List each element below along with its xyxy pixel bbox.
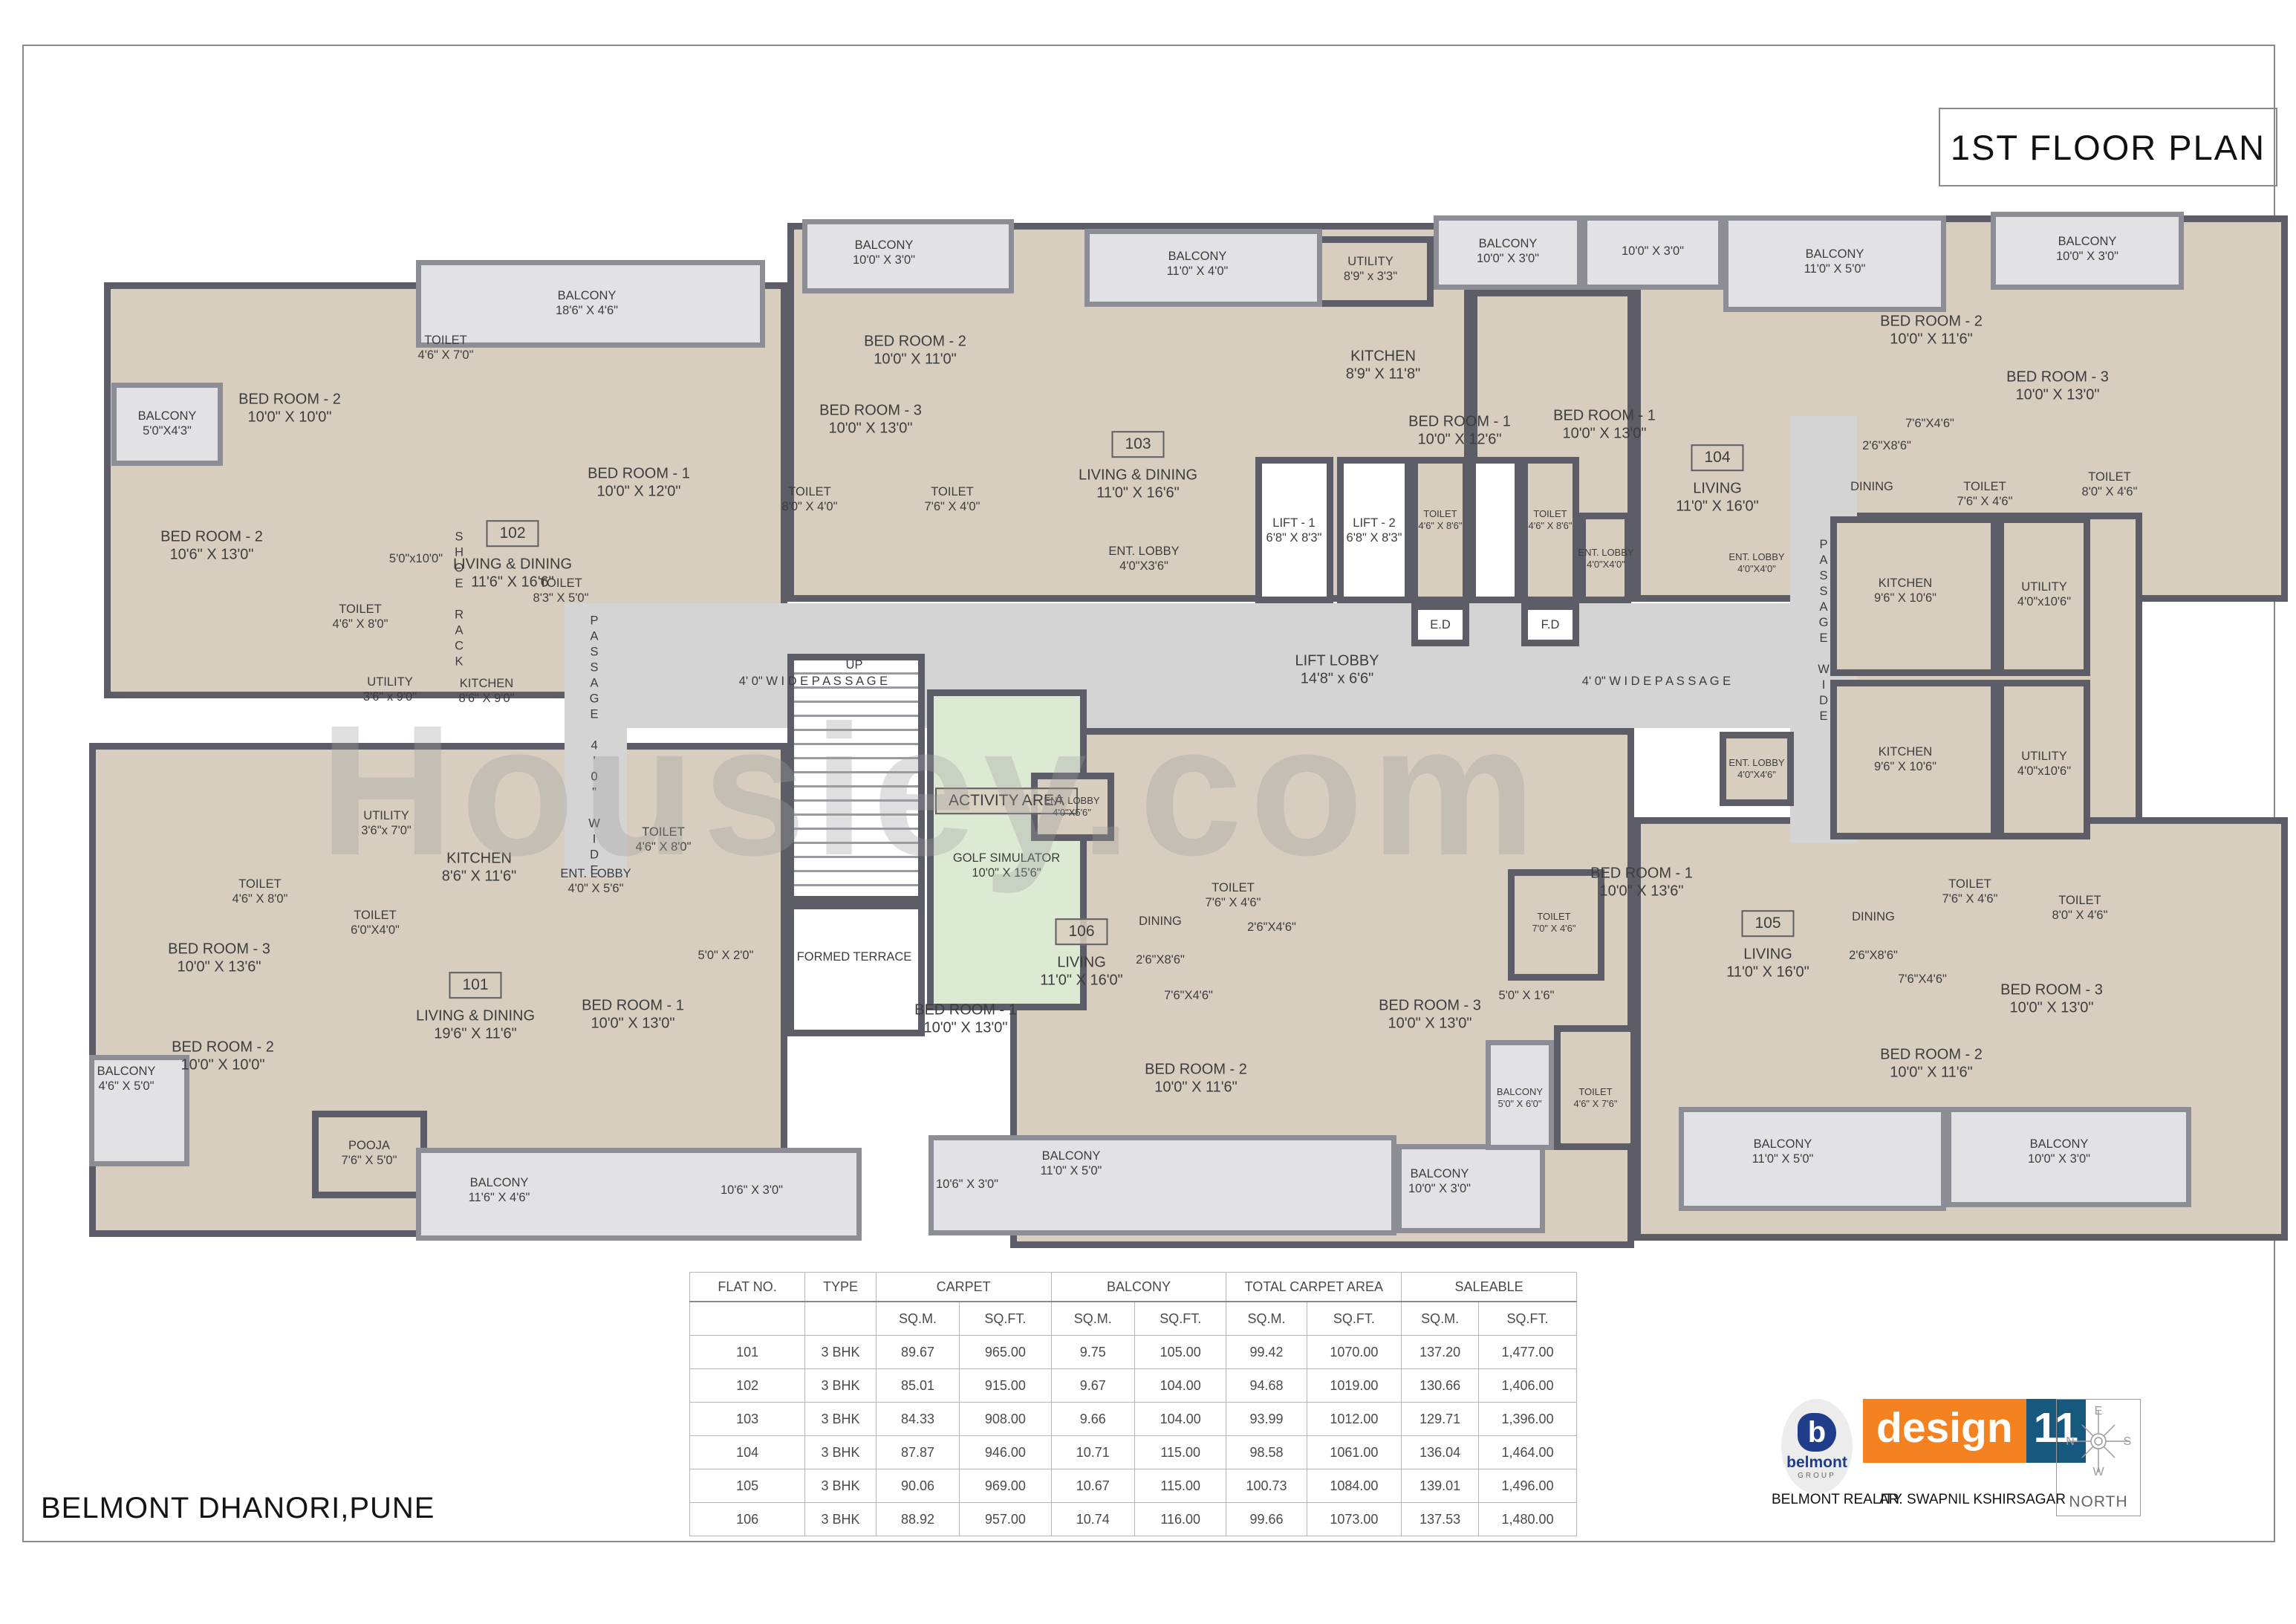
table-row: 1063 BHK88.92957.0010.74116.0099.661073.… <box>690 1503 1577 1536</box>
page-title: 1ST FLOOR PLAN <box>1951 127 2266 168</box>
belmont-logo-name: belmont <box>1786 1454 1847 1472</box>
table-unit-header: SQ.M. <box>1051 1302 1135 1336</box>
room-label: BED ROOM - 110'0" X 12'0" <box>588 465 690 501</box>
room-label: DINING <box>1852 909 1895 924</box>
table-col-header: FLAT NO. <box>690 1273 805 1302</box>
room-label: 2'6"X8'6" <box>1136 952 1185 967</box>
table-cell: 908.00 <box>960 1403 1051 1436</box>
room-label: TOILET6'0"X4'0" <box>351 908 400 938</box>
table-cell: 88.92 <box>876 1503 960 1536</box>
room-label: 2'6"X8'6" <box>1849 948 1898 963</box>
room-label: UTILITY3'6"x 7'0" <box>361 808 412 838</box>
room-label: BED ROOM - 310'0" X 13'0" <box>1379 997 1481 1033</box>
room-label: TOILET7'6" X 4'6" <box>1942 877 1998 906</box>
room-label: GOLF SIMULATOR10'0" X 15'6" <box>953 851 1060 880</box>
table-cell: 1019.00 <box>1307 1369 1402 1403</box>
table-cell: 3 BHK <box>805 1336 877 1369</box>
room-label: BALCONY10'0" X 3'0" <box>2056 234 2118 264</box>
room-label: LIVING & DINING11'0" X 16'6" <box>1079 467 1197 503</box>
table-cell: 136.04 <box>1402 1436 1479 1469</box>
table-cell: 116.00 <box>1135 1503 1226 1536</box>
table-cell: 1,480.00 <box>1479 1503 1577 1536</box>
table-cell: 87.87 <box>876 1436 960 1469</box>
room-label: BALCONY18'6" X 4'6" <box>556 288 618 318</box>
table-cell: 84.33 <box>876 1403 960 1436</box>
room-label: 2'6"X4'6" <box>1247 920 1296 935</box>
room-label: 10'6" X 3'0" <box>721 1183 783 1198</box>
room-label: LIFT - 16'8" X 8'3" <box>1266 516 1322 545</box>
shaft <box>787 903 925 1036</box>
room-label: TOILET8'0" X 4'0" <box>782 484 838 514</box>
room-label: BALCONY10'0" X 3'0" <box>853 238 915 267</box>
room-label: BED ROOM - 310'0" X 13'0" <box>2006 368 2109 405</box>
room-label: PASSAGE WIDE <box>1816 538 1831 725</box>
table-col-header: CARPET <box>876 1273 1051 1302</box>
room-label: TOILET4'6" X 8'0" <box>333 602 388 631</box>
room-label: ENT. LOBBY4'0"X5'6" <box>1044 795 1099 819</box>
room-label: DINING <box>1139 914 1182 929</box>
room-label: KITCHEN8'6" X 11'6" <box>442 850 516 886</box>
room-label: TOILET4'6" X 7'0" <box>418 333 474 363</box>
area-table-head: FLAT NO.TYPECARPETBALCONYTOTAL CARPET AR… <box>690 1273 1577 1336</box>
table-cell: 1070.00 <box>1307 1336 1402 1369</box>
room-label: TOILET4'6" X 8'6" <box>1418 508 1462 532</box>
room-label: UP <box>846 657 863 672</box>
design11-word: design <box>1863 1399 2026 1463</box>
table-row: 1033 BHK84.33908.009.66104.0093.991012.0… <box>690 1403 1577 1436</box>
table-cell: 1,396.00 <box>1479 1403 1577 1436</box>
room-label: BALCONY4'6" X 5'0" <box>97 1064 156 1094</box>
room-label: TOILET4'6" X 7'6" <box>1573 1086 1617 1110</box>
room-label: BALCONY11'0" X 5'0" <box>1041 1149 1102 1178</box>
table-cell: 129.71 <box>1402 1403 1479 1436</box>
table-unit-header <box>690 1302 805 1336</box>
room-label: KITCHEN8'6" X 9'0" <box>459 676 515 706</box>
table-cell: 3 BHK <box>805 1503 877 1536</box>
table-cell: 1012.00 <box>1307 1403 1402 1436</box>
room-label: 7'6"X4'6" <box>1164 988 1213 1003</box>
table-cell: 89.67 <box>876 1336 960 1369</box>
north-compass: E N S W NORTH <box>2056 1399 2141 1516</box>
belmont-logo-icon: b <box>1798 1413 1836 1452</box>
room-label: SHOE RACK <box>452 530 466 671</box>
table-cell: 104.00 <box>1135 1369 1226 1403</box>
table-cell: 3 BHK <box>805 1469 877 1503</box>
room-label: BALCONY10'0" X 3'0" <box>2028 1137 2090 1166</box>
table-row: 1053 BHK90.06969.0010.67115.00100.731084… <box>690 1469 1577 1503</box>
room-label: E.D <box>1430 617 1451 632</box>
room-label: BED ROOM - 210'6" X 13'0" <box>160 528 263 565</box>
table-cell: 130.66 <box>1402 1369 1479 1403</box>
table-unit-header: SQ.FT. <box>1307 1302 1402 1336</box>
table-col-header: TYPE <box>805 1273 877 1302</box>
room-label: ENT. LOBBY4'0" X 5'6" <box>560 866 631 896</box>
room-label: BED ROOM - 210'0" X 11'0" <box>864 333 966 369</box>
room-label: BED ROOM - 210'0" X 10'0" <box>172 1039 274 1075</box>
passage <box>565 603 1798 728</box>
compass-s: S <box>2124 1435 2132 1448</box>
table-cell: 10.74 <box>1051 1503 1135 1536</box>
room-label: BALCONY11'0" X 5'0" <box>1804 247 1866 276</box>
room-label: 104 <box>1691 444 1743 471</box>
room-label: BED ROOM - 210'0" X 11'6" <box>1880 1046 1983 1082</box>
room-label: LIVING11'0" X 16'0" <box>1676 480 1759 516</box>
room-label: UTILITY4'0"x10'6" <box>2017 749 2071 779</box>
compass-e: E <box>2095 1405 2103 1417</box>
room-label: LIVING & DINING19'6" X 11'6" <box>416 1007 535 1044</box>
room-label: BALCONY10'0" X 3'0" <box>1477 236 1539 266</box>
room-label: 10'0" X 3'0" <box>1622 244 1684 259</box>
title-box: 1ST FLOOR PLAN <box>1939 108 2277 186</box>
table-cell: 94.68 <box>1226 1369 1307 1403</box>
room-label: ENT. LOBBY4'0"X4'0" <box>1578 547 1633 571</box>
architect-name: AR. SWAPNIL KSHIRSAGAR <box>1879 1492 2032 1508</box>
room-label: 5'0"x10'0" <box>389 551 443 566</box>
room-label: KITCHEN9'6" X 10'6" <box>1874 576 1936 605</box>
room-label: TOILET8'3" X 5'0" <box>533 576 589 605</box>
table-row: 1043 BHK87.87946.0010.71115.0098.581061.… <box>690 1436 1577 1469</box>
room-label: LIFT - 26'8" X 8'3" <box>1347 516 1402 545</box>
table-cell: 93.99 <box>1226 1403 1307 1436</box>
room-label: 7'6"X4'6" <box>1905 416 1954 431</box>
table-cell: 1,496.00 <box>1479 1469 1577 1503</box>
table-cell: 115.00 <box>1135 1469 1226 1503</box>
table-cell: 965.00 <box>960 1336 1051 1369</box>
room-label: DINING <box>1850 479 1893 494</box>
room-label: TOILET4'6" X 8'0" <box>232 877 288 906</box>
room-label: UTILITY8'9" x 3'3" <box>1344 254 1397 284</box>
project-name: BELMONT DHANORI,PUNE <box>41 1492 435 1525</box>
developer-name: BELMONT REALITY <box>1772 1492 1865 1508</box>
north-label: NORTH <box>2069 1493 2127 1511</box>
table-cell: 915.00 <box>960 1369 1051 1403</box>
table-cell: 104 <box>690 1436 805 1469</box>
room-label: KITCHEN9'6" X 10'6" <box>1874 744 1936 774</box>
table-unit-header: SQ.M. <box>876 1302 960 1336</box>
table-cell: 957.00 <box>960 1503 1051 1536</box>
room-label: KITCHEN8'9" X 11'8" <box>1346 348 1420 384</box>
drawing-sheet: BALCONY5'0"X4'3"BED ROOM - 210'6" X 13'0… <box>0 0 2296 1624</box>
table-cell: 10.67 <box>1051 1469 1135 1503</box>
table-cell: 105.00 <box>1135 1336 1226 1369</box>
room-label: TOILET8'0" X 4'6" <box>2052 893 2108 923</box>
table-unit-header: SQ.M. <box>1402 1302 1479 1336</box>
staircase <box>787 654 925 903</box>
table-cell: 106 <box>690 1503 805 1536</box>
room-label: TOILET7'6" X 4'6" <box>1206 880 1261 910</box>
room-label: BED ROOM - 310'0" X 13'6" <box>168 941 270 977</box>
room-label: UTILITY4'0"x10'6" <box>2017 579 2071 609</box>
room-label: TOILET4'6" X 8'0" <box>636 825 692 854</box>
room-label: BED ROOM - 110'0" X 13'0" <box>582 997 684 1033</box>
room-label: LIVING11'0" X 16'0" <box>1040 954 1123 990</box>
table-col-header: SALEABLE <box>1402 1273 1577 1302</box>
table-cell: 99.42 <box>1226 1336 1307 1369</box>
room-label: BED ROOM - 210'0" X 11'6" <box>1145 1061 1247 1097</box>
room-label: BALCONY10'0" X 3'0" <box>1408 1166 1471 1196</box>
room-label: FORMED TERRACE <box>797 949 912 964</box>
room-label: LIFT LOBBY14'8" x 6'6" <box>1295 652 1379 689</box>
table-unit-header: SQ.FT. <box>1479 1302 1577 1336</box>
room-label: 101 <box>449 972 501 998</box>
table-col-header: BALCONY <box>1051 1273 1226 1302</box>
room-label: 5'0" X 1'6" <box>1499 988 1555 1003</box>
room-label: TOILET7'6" X 4'6" <box>1957 479 2013 509</box>
room-label: LIVING11'0" X 16'0" <box>1726 946 1809 982</box>
room-label: 106 <box>1055 918 1108 945</box>
table-unit-header <box>805 1302 877 1336</box>
table-cell: 115.00 <box>1135 1436 1226 1469</box>
room-label: BALCONY11'0" X 4'0" <box>1167 249 1229 279</box>
room-label: BED ROOM - 110'0" X 12'6" <box>1408 413 1511 449</box>
shaft <box>1469 457 1521 603</box>
room-label: BED ROOM - 110'0" X 13'0" <box>1553 407 1656 444</box>
balcony <box>929 1135 1396 1235</box>
table-cell: 102 <box>690 1369 805 1403</box>
table-unit-header: SQ.FT. <box>960 1302 1051 1336</box>
table-cell: 1061.00 <box>1307 1436 1402 1469</box>
table-cell: 137.20 <box>1402 1336 1479 1369</box>
table-col-header: TOTAL CARPET AREA <box>1226 1273 1402 1302</box>
table-cell: 1,464.00 <box>1479 1436 1577 1469</box>
table-cell: 105 <box>690 1469 805 1503</box>
table-cell: 99.66 <box>1226 1503 1307 1536</box>
room-label: BALCONY11'0" X 5'0" <box>1752 1137 1814 1166</box>
table-row: 1023 BHK85.01915.009.67104.0094.681019.0… <box>690 1369 1577 1403</box>
room-label: ENT. LOBBY4'0"X4'0" <box>1728 551 1784 575</box>
compass-icon: E N S W <box>2063 1404 2134 1478</box>
table-cell: 3 BHK <box>805 1369 877 1403</box>
room-label: PASSAGE 4'0" WIDE <box>587 614 602 880</box>
table-cell: 85.01 <box>876 1369 960 1403</box>
table-cell: 137.53 <box>1402 1503 1479 1536</box>
room-label: 4' 0" W I D E P A S S A G E <box>739 674 888 689</box>
room-label: BED ROOM - 210'0" X 11'6" <box>1880 313 1983 349</box>
table-cell: 9.66 <box>1051 1403 1135 1436</box>
room-label: UTILITY3'6" x 9'0" <box>363 675 417 704</box>
room-label: F.D <box>1541 617 1560 632</box>
room-label: BALCONY11'6" X 4'6" <box>469 1175 530 1205</box>
room-label: TOILET4'6" X 8'6" <box>1528 508 1572 532</box>
area-table-body: 1013 BHK89.67965.009.75105.0099.421070.0… <box>690 1336 1577 1536</box>
room-label: ENT. LOBBY4'0"X4'6" <box>1728 757 1784 781</box>
table-cell: 1,406.00 <box>1479 1369 1577 1403</box>
table-cell: 3 BHK <box>805 1436 877 1469</box>
table-cell: 10.71 <box>1051 1436 1135 1469</box>
room-label: POOJA7'6" X 5'0" <box>342 1138 397 1168</box>
room-label: BALCONY5'0" X 6'0" <box>1497 1086 1543 1110</box>
room-label: ENT. LOBBY4'0"X3'6" <box>1108 544 1179 574</box>
table-cell: 9.67 <box>1051 1369 1135 1403</box>
table-row: 1013 BHK89.67965.009.75105.0099.421070.0… <box>690 1336 1577 1369</box>
room-label: 105 <box>1741 910 1794 937</box>
table-cell: 9.75 <box>1051 1336 1135 1369</box>
table-cell: 969.00 <box>960 1469 1051 1503</box>
room-label: TOILET7'6" X 4'0" <box>925 484 980 514</box>
table-cell: 98.58 <box>1226 1436 1307 1469</box>
table-unit-header: SQ.M. <box>1226 1302 1307 1336</box>
table-cell: 139.01 <box>1402 1469 1479 1503</box>
area-table: FLAT NO.TYPECARPETBALCONYTOTAL CARPET AR… <box>689 1272 1577 1536</box>
table-cell: 104.00 <box>1135 1403 1226 1436</box>
room-label: BED ROOM - 110'0" X 13'0" <box>914 1001 1017 1038</box>
room-label: BED ROOM - 310'0" X 13'0" <box>819 402 922 438</box>
table-cell: 1073.00 <box>1307 1503 1402 1536</box>
room-label: BALCONY5'0"X4'3" <box>138 409 197 438</box>
compass-w: W <box>2092 1466 2104 1478</box>
table-cell: 101 <box>690 1336 805 1369</box>
room-label: TOILET8'0" X 4'6" <box>2082 470 2138 499</box>
belmont-logo: b belmont GROUP <box>1781 1399 1853 1494</box>
design11-logo: design 11 <box>1863 1399 2086 1463</box>
compass-n: N <box>2066 1435 2075 1448</box>
table-cell: 1084.00 <box>1307 1469 1402 1503</box>
area-table-wrap: FLAT NO.TYPECARPETBALCONYTOTAL CARPET AR… <box>689 1272 1577 1536</box>
table-unit-header: SQ.FT. <box>1135 1302 1226 1336</box>
room-label: 102 <box>486 520 539 547</box>
belmont-logo-sub: GROUP <box>1798 1472 1836 1480</box>
room-label: 4' 0" W I D E P A S S A G E <box>1582 674 1731 689</box>
room-label: 10'6" X 3'0" <box>936 1177 998 1192</box>
room-label: 5'0" X 2'0" <box>698 948 754 963</box>
room-label: 2'6"X8'6" <box>1862 438 1911 453</box>
room-label: BED ROOM - 110'0" X 13'6" <box>1590 865 1693 901</box>
table-cell: 90.06 <box>876 1469 960 1503</box>
table-cell: 946.00 <box>960 1436 1051 1469</box>
room-label: 7'6"X4'6" <box>1898 972 1947 987</box>
table-cell: 100.73 <box>1226 1469 1307 1503</box>
table-cell: 3 BHK <box>805 1403 877 1436</box>
table-cell: 1,477.00 <box>1479 1336 1577 1369</box>
room-label: 103 <box>1111 431 1164 458</box>
room-label: TOILET7'0" X 4'6" <box>1532 911 1575 935</box>
table-cell: 103 <box>690 1403 805 1436</box>
room-label: BED ROOM - 210'0" X 10'0" <box>238 391 341 427</box>
room-label: BED ROOM - 310'0" X 13'0" <box>2000 981 2103 1018</box>
